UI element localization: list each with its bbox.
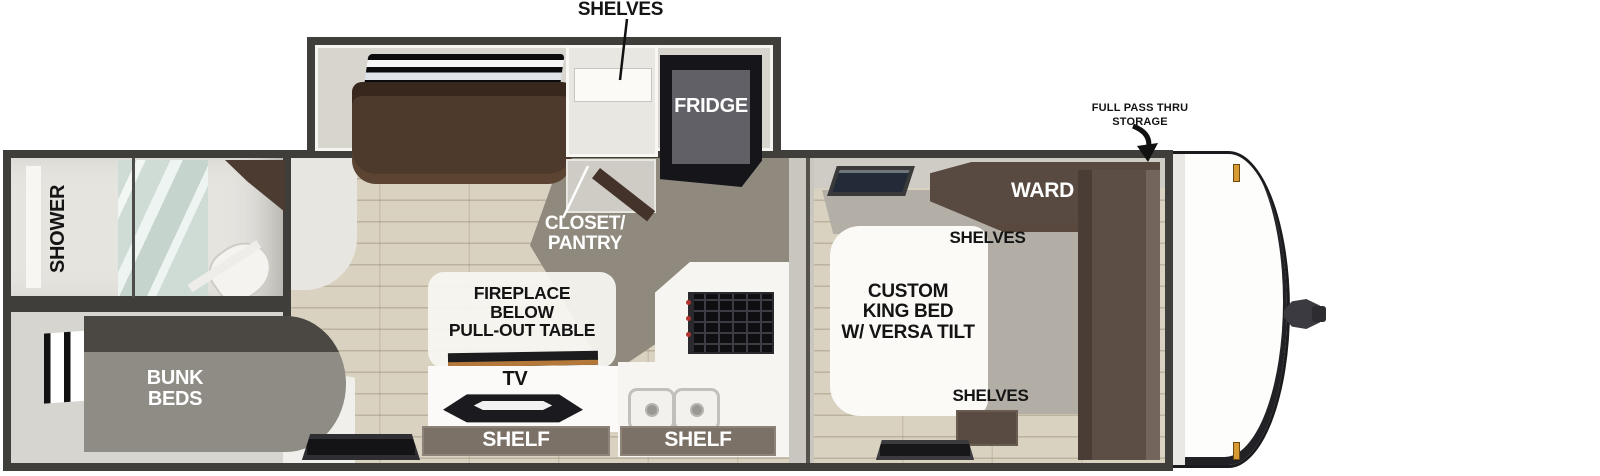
stove-knob xyxy=(686,300,691,305)
fridge-label: FRIDGE xyxy=(660,96,762,117)
sink-drain xyxy=(645,403,659,417)
bedroom-shelves-top-label: SHELVES xyxy=(930,229,1045,247)
front-cap xyxy=(1168,151,1290,468)
hitch-tip-icon xyxy=(1312,306,1326,322)
entry-step xyxy=(302,434,420,460)
storage-arrow-shaft xyxy=(1133,126,1149,150)
stove-knob xyxy=(686,316,691,321)
shower-door-rail xyxy=(132,158,135,298)
bedroom-divider-wall-line xyxy=(806,158,810,463)
tv-screen xyxy=(474,401,552,410)
stove-cooktop xyxy=(692,292,774,354)
rv-floorplan: 68” JACKKNIFE SOFA FRIDGE SHELVES SHOWER… xyxy=(0,0,1600,476)
shelf-left-label: SHELF xyxy=(422,429,610,451)
shower-pan xyxy=(26,166,41,288)
pass-thru-storage-label: FULL PASS THRU STORAGE xyxy=(1076,101,1204,130)
marker-light-bottom xyxy=(1233,442,1240,460)
king-bed-label: CUSTOM KING BED W/ VERSA TILT xyxy=(826,282,990,343)
fireplace-table-label: FIREPLACE BELOW PULL-OUT TABLE xyxy=(420,284,624,340)
bedroom-divider-wall xyxy=(789,158,814,463)
sink-right xyxy=(673,388,720,431)
stove-knob xyxy=(686,332,691,337)
wardrobe-cabinet-column xyxy=(1078,170,1160,460)
fireplace xyxy=(448,351,598,368)
wardrobe-label: WARD xyxy=(995,180,1090,202)
shower-bunk-divider-wall xyxy=(11,296,283,312)
bedroom-shelves-bottom-label: SHELVES xyxy=(933,387,1048,405)
sink-drain xyxy=(690,403,704,417)
shelf-right-label: SHELF xyxy=(620,429,776,451)
sink-left xyxy=(628,388,675,431)
shelf-surface xyxy=(574,68,652,102)
bedroom-floor-step xyxy=(876,440,974,460)
closet-pantry-label: CLOSET/ PANTRY xyxy=(505,214,665,255)
marker-light-top xyxy=(1233,164,1240,182)
bedroom-vent-window xyxy=(827,166,915,196)
jackknife-sofa xyxy=(352,82,572,184)
shelves-callout-label: SHELVES xyxy=(563,0,678,20)
bunk-beds-label: BUNK BEDS xyxy=(120,368,230,411)
tv-label: TV xyxy=(460,369,570,390)
shower-label: SHOWER xyxy=(48,168,69,290)
bunk-top-mattress xyxy=(84,316,346,352)
